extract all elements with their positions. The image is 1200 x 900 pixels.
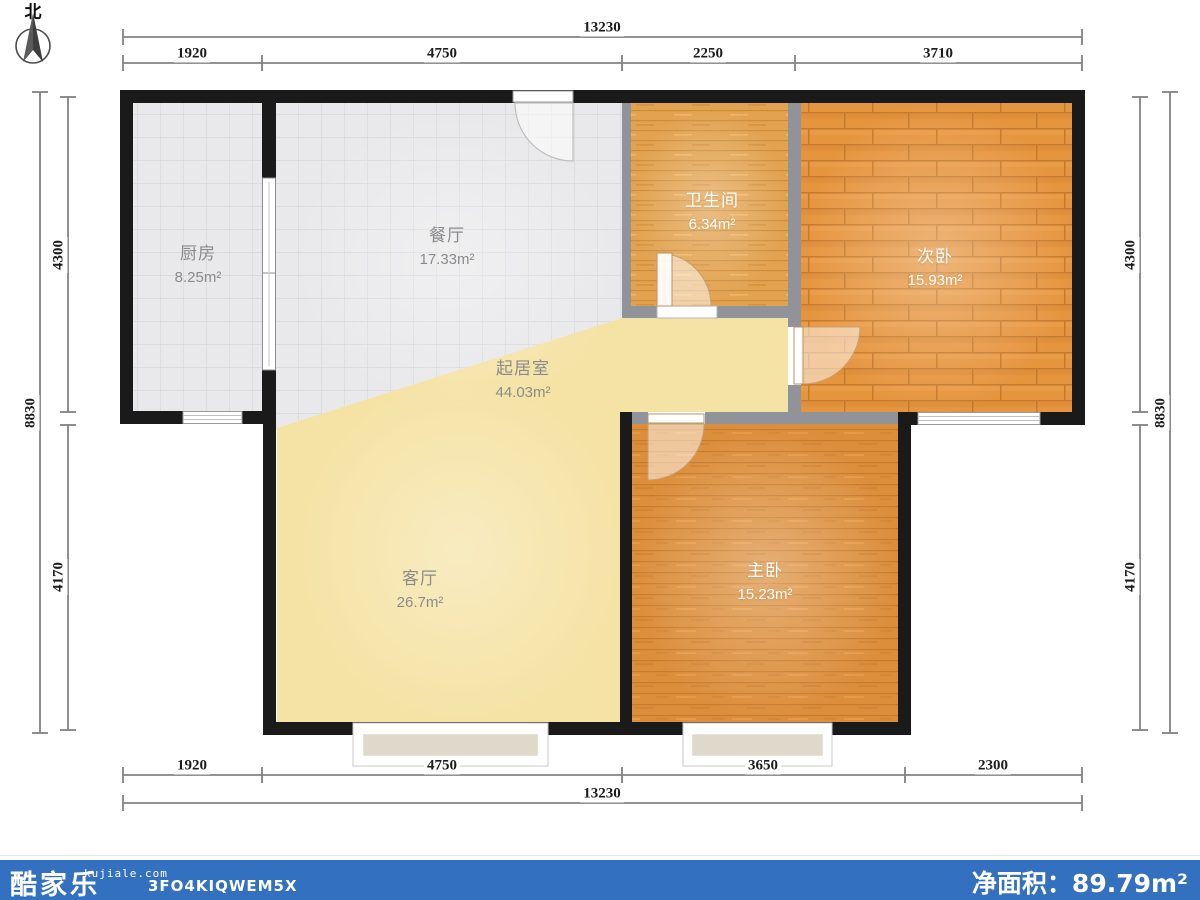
floorplan-page: 北 13230 1920 4750 2250 3710 1920 4750 36… <box>0 0 1200 900</box>
room-area: 15.23m² <box>737 584 792 607</box>
plan-code: 3FO4KIQWEM5X <box>148 877 298 895</box>
kitchen-window <box>183 412 242 424</box>
dim-top-total: 13230 <box>580 20 624 37</box>
dim-bottom-seg-4: 2300 <box>975 758 1011 775</box>
room-area: 17.33m² <box>419 249 474 272</box>
footer-separator <box>0 855 1200 856</box>
room-name: 餐厅 <box>419 223 474 249</box>
room-name: 卫生间 <box>685 188 739 214</box>
bedroom2-window <box>918 413 1040 425</box>
room-name: 起居室 <box>495 356 550 382</box>
dim-bottom-total: 13230 <box>580 786 624 803</box>
room-area: 15.93m² <box>907 270 962 293</box>
room-label-dining: 餐厅 17.33m² <box>419 223 474 271</box>
dim-top-seg-4: 3710 <box>920 46 956 63</box>
net-area-value: 净面积：89.79m² <box>972 864 1188 900</box>
dim-bottom-seg-1: 1920 <box>174 758 210 775</box>
room-area: 44.03m² <box>495 382 550 405</box>
dim-right-seg-2: 4170 <box>1123 559 1140 595</box>
room-label-kitchen: 厨房 8.25m² <box>175 241 222 289</box>
room-label-bathroom: 卫生间 6.34m² <box>685 188 739 236</box>
dim-right-seg-1: 4300 <box>1123 237 1140 273</box>
room-name: 客厅 <box>397 566 444 592</box>
dim-right-outer: 8830 <box>1153 395 1170 431</box>
dim-top-seg-2: 4750 <box>424 46 460 63</box>
dim-top-seg-1: 1920 <box>174 46 210 63</box>
dim-top-seg-3: 2250 <box>690 46 726 63</box>
room-area: 26.7m² <box>397 592 444 615</box>
room-label-bedroom2: 次卧 15.93m² <box>907 244 962 292</box>
dim-left-seg-1: 4300 <box>51 237 68 273</box>
room-label-master-bedroom: 主卧 15.23m² <box>737 558 792 606</box>
dim-left-seg-2: 4170 <box>51 559 68 595</box>
room-name: 厨房 <box>175 241 222 267</box>
room-label-living-area: 起居室 44.03m² <box>495 356 550 404</box>
room-area: 6.34m² <box>685 214 739 237</box>
north-label: 北 <box>25 0 42 23</box>
room-label-living-room: 客厅 26.7m² <box>397 566 444 614</box>
room-name: 次卧 <box>907 244 962 270</box>
footer-bar: 酷家乐 kujiale.com 3FO4KIQWEM5X 净面积：89.79m² <box>0 860 1200 900</box>
dim-bottom-seg-3: 3650 <box>745 758 781 775</box>
room-name: 主卧 <box>737 558 792 584</box>
dim-bottom-seg-2: 4750 <box>424 758 460 775</box>
room-area: 8.25m² <box>175 267 222 290</box>
dim-left-outer: 8830 <box>23 395 40 431</box>
sliding-door-kitchen <box>263 178 276 370</box>
